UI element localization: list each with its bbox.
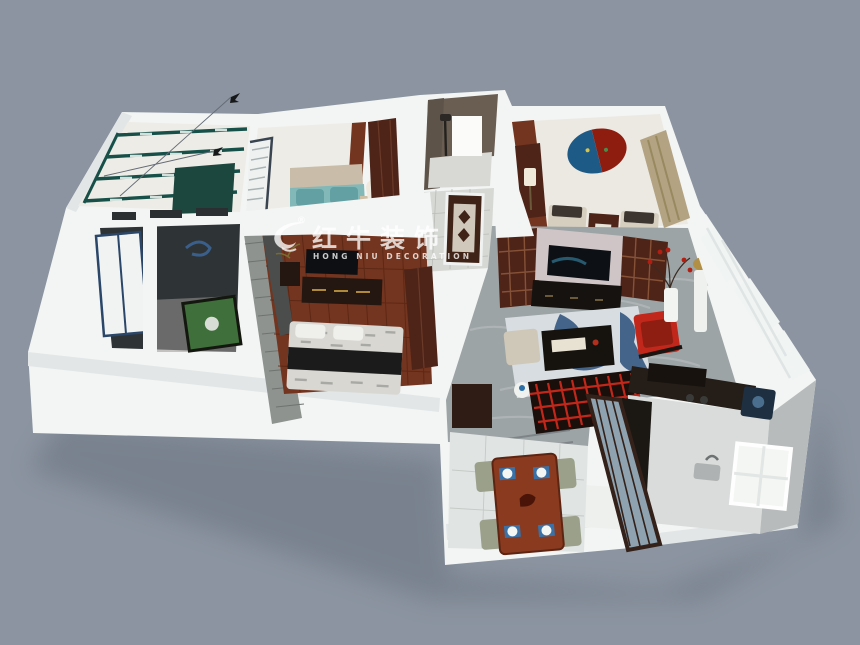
watermark-subtitle: HONG NIU DECORATION bbox=[313, 252, 472, 261]
blue-cup bbox=[519, 385, 525, 391]
bathroom-floor bbox=[428, 152, 492, 188]
render-canvas: ® 红牛装饰 HONG NIU DECORATION bbox=[0, 0, 860, 645]
coffee-table bbox=[541, 325, 614, 371]
sofa-ottoman bbox=[503, 328, 540, 365]
bookshelf-right bbox=[620, 236, 668, 302]
floorplan-3d-render: ® 红牛装饰 HONG NIU DECORATION bbox=[0, 0, 860, 645]
bed2-pillow-2 bbox=[333, 325, 364, 341]
bathroom bbox=[424, 94, 498, 190]
bed2-pillow-1 bbox=[295, 323, 326, 339]
registered-mark: ® bbox=[297, 216, 306, 226]
bathroom-window bbox=[452, 116, 482, 156]
storage-room bbox=[96, 224, 241, 360]
shower-pipe bbox=[445, 116, 446, 156]
drying-cloth bbox=[172, 163, 235, 214]
kitchen-window bbox=[731, 443, 791, 508]
kitchen-sink bbox=[693, 463, 721, 482]
bed-2 bbox=[286, 321, 403, 395]
storage-divider-wall bbox=[143, 226, 157, 360]
watermark-title: 红牛装饰 bbox=[312, 224, 448, 253]
balcony-inner-windows bbox=[112, 212, 228, 216]
shower-head bbox=[440, 114, 451, 121]
sideboard bbox=[452, 384, 492, 428]
green-machine bbox=[183, 296, 241, 351]
bed1-pillow-left bbox=[296, 189, 324, 206]
water-heater bbox=[740, 386, 776, 420]
stove-burner bbox=[686, 394, 694, 402]
stove-burner-2 bbox=[700, 396, 708, 404]
nightstand-2 bbox=[280, 262, 300, 286]
tv-screen bbox=[547, 245, 611, 281]
